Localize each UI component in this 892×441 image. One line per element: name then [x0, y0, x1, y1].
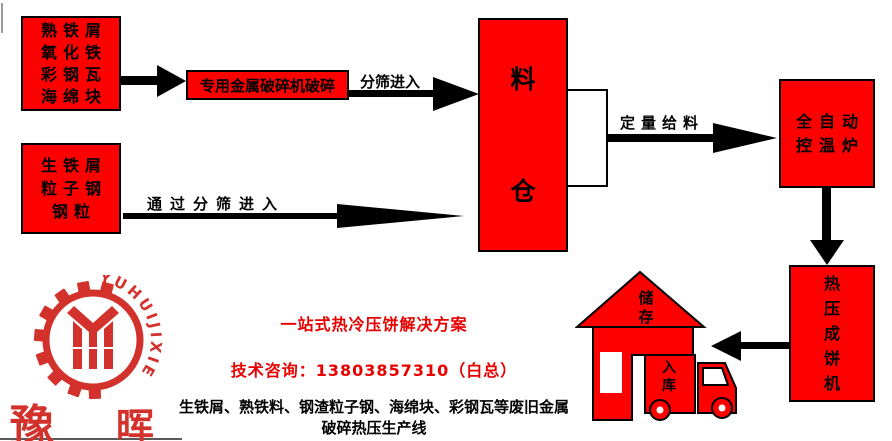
slogan-text: 一站式热冷压饼解决方案: [168, 311, 580, 335]
press-label: 热压成饼机: [823, 271, 841, 396]
silo-outlet-notch: [566, 89, 608, 187]
arrow-source-to-crusher-head: [157, 65, 186, 97]
source-line: 粒子钢: [35, 177, 107, 200]
source-line: 氧化铁: [35, 42, 107, 64]
arrow-source-to-crusher-shaft: [121, 76, 159, 85]
source-materials-box-top: 熟铁屑 氧化铁 彩钢瓦 海绵块: [21, 16, 121, 111]
left-edge-line: [1, 3, 3, 33]
monogram: [67, 306, 119, 369]
flowchart-canvas: 熟铁屑 氧化铁 彩钢瓦 海绵块 专用金属破碎机破碎 分筛进入 生铁屑 粒子钢 钢…: [0, 0, 892, 441]
arrow-furnace-to-press-shaft: [822, 188, 831, 241]
furnace-box: 全自动 控温炉: [779, 79, 875, 188]
warehouse-label: 入库: [660, 359, 678, 395]
brand-character-right: 晖: [116, 396, 154, 441]
source-line: 熟铁屑: [35, 20, 107, 42]
press-box: 热压成饼机: [789, 265, 875, 402]
silo-box: 料 仓: [478, 18, 568, 252]
source-line: 生铁屑: [35, 154, 107, 177]
description-text: 生铁屑、熟铁料、钢渣粒子钢、海绵块、彩钢瓦等废旧金属 破碎热压生产线: [168, 397, 580, 439]
arrow-furnace-to-press-head: [810, 240, 844, 265]
arrow-source2-to-silo-head: [337, 204, 464, 228]
source-line: 彩钢瓦: [35, 64, 107, 86]
arrow-silo-to-furnace-shaft: [607, 134, 717, 142]
house-window: [600, 352, 622, 393]
sieve-arrow-label: 分筛进入: [360, 71, 420, 92]
arrow-press-to-storage-shaft: [740, 342, 789, 349]
source-line: 钢粒: [46, 200, 96, 223]
contact-text: 技术咨询：13803857310（白总）: [168, 357, 580, 381]
feed-arrow-label: 定量给料: [620, 112, 704, 133]
description-line-2: 破碎热压生产线: [168, 418, 580, 439]
crusher-box: 专用金属破碎机破碎: [186, 70, 349, 100]
footer-text-block: 一站式热冷压饼解决方案 技术咨询：13803857310（白总） 生铁屑、熟铁料…: [168, 311, 580, 439]
source-line: 海绵块: [35, 86, 107, 108]
furnace-line: 全自动: [789, 110, 865, 134]
arrow-silo-to-furnace-head: [713, 123, 777, 153]
brand-character-left: 豫: [10, 390, 54, 441]
silo-char-bottom: 仓: [510, 172, 535, 208]
description-line-1: 生铁屑、熟铁料、钢渣粒子钢、海绵块、彩钢瓦等废旧金属: [168, 397, 580, 418]
arrow-source2-to-silo-shaft: [123, 213, 348, 219]
arrow-crusher-to-silo-head: [433, 77, 479, 111]
storage-label: 储存: [636, 289, 656, 327]
furnace-line: 控温炉: [789, 134, 865, 158]
source-materials-box-bottom: 生铁屑 粒子钢 钢粒: [21, 143, 121, 234]
crusher-label: 专用金属破碎机破碎: [200, 75, 335, 96]
arrow-crusher-to-silo-shaft: [348, 90, 440, 97]
storage-illustration: [575, 264, 745, 424]
silo-char-top: 料: [510, 60, 535, 96]
